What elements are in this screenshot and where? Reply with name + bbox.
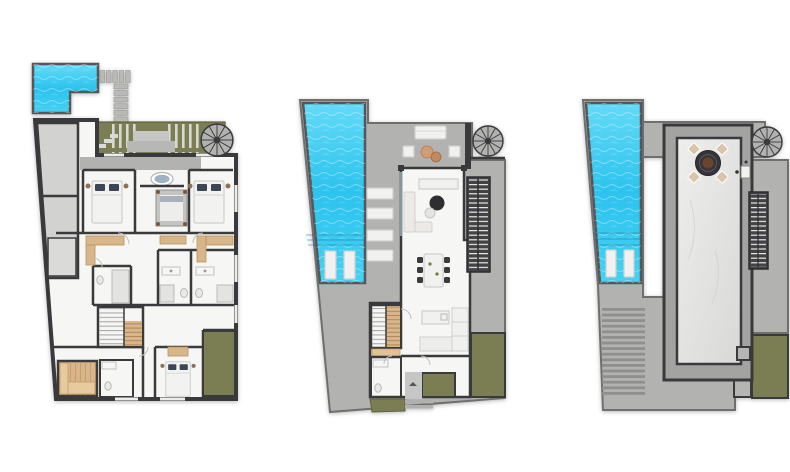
in-pool-lounger — [606, 250, 616, 277]
wardrobe — [372, 349, 400, 356]
stepping-stone — [100, 71, 105, 83]
toilet — [181, 289, 188, 298]
pool-water-texture — [33, 64, 98, 113]
sink — [102, 362, 116, 369]
bed-bedroom-3 — [188, 181, 231, 223]
outdoor-chair — [403, 146, 414, 157]
pouf-table — [431, 152, 441, 162]
terrace-strip — [80, 157, 201, 170]
dining-table — [424, 254, 443, 287]
wardrobe — [197, 236, 206, 262]
roof-vent — [735, 170, 739, 174]
garden-patch — [471, 333, 505, 397]
roof-access-door — [741, 166, 750, 178]
stepping-stone — [114, 110, 128, 115]
floorplan-main-level — [300, 100, 505, 412]
in-pool-lounger — [344, 251, 355, 279]
kitchen-island — [422, 311, 449, 324]
lap-pool — [586, 103, 641, 283]
stair-treads — [99, 308, 124, 346]
skylight — [737, 347, 750, 360]
shower — [112, 270, 129, 303]
toilet — [97, 276, 103, 284]
wardrobe — [206, 236, 233, 245]
appliance-column — [452, 308, 468, 351]
shower — [160, 285, 174, 302]
stair-wood-treads — [386, 306, 400, 347]
dining-chair — [444, 267, 450, 273]
stepping-stone — [114, 84, 128, 89]
exterior-dark-stair — [749, 192, 768, 269]
sun-lounger — [367, 250, 393, 261]
glass-corner-post — [398, 165, 404, 171]
sun-lounger — [367, 188, 393, 199]
sauna — [58, 361, 97, 396]
stepping-stone-path — [100, 71, 130, 122]
stepping-stone — [119, 71, 124, 83]
skylight — [734, 380, 751, 397]
floorplans-canvas — [0, 0, 790, 472]
stepping-stone — [114, 104, 128, 109]
dining-chair — [417, 257, 423, 263]
lap-pool — [303, 103, 365, 283]
sink — [373, 360, 388, 367]
louvered-pergola — [602, 307, 645, 397]
dining-chair — [444, 257, 450, 263]
floorplan-roof-level — [583, 100, 788, 410]
plunge-pool — [33, 64, 98, 113]
wardrobe — [168, 347, 188, 356]
stair-wood-treads — [124, 321, 142, 346]
garden-patch — [752, 335, 788, 398]
in-pool-lounger — [325, 251, 336, 279]
sun-lounger — [367, 208, 393, 219]
toilet — [196, 289, 203, 298]
fire-pit-center — [703, 158, 714, 169]
stepping-stone — [114, 117, 128, 122]
floorplan-lower-level — [33, 64, 236, 399]
spiral-staircase — [752, 127, 782, 157]
lounge-side-wall — [465, 123, 471, 169]
dining-chair — [444, 277, 450, 283]
stair-treads — [372, 306, 386, 347]
in-pool-lounger — [624, 250, 634, 277]
sun-lounger — [367, 230, 393, 241]
table-setting — [428, 262, 431, 265]
stepping-stone — [114, 97, 128, 102]
faucet — [204, 270, 207, 273]
coffee-table-light — [425, 208, 435, 218]
stepping-stone — [113, 71, 118, 83]
l-sofa-chaise — [415, 222, 432, 232]
dining-chair — [417, 277, 423, 283]
stepping-stone — [106, 71, 111, 83]
outdoor-sofa — [415, 126, 446, 139]
spiral-staircase — [473, 126, 503, 156]
stepping-stone — [126, 71, 131, 83]
bed-bedroom-4 — [160, 362, 195, 396]
toilet — [375, 384, 381, 392]
sauna-bench — [60, 363, 68, 394]
garden-deck-platform — [127, 141, 175, 152]
garden-step — [98, 144, 106, 148]
shower — [217, 285, 233, 302]
wardrobe — [86, 245, 95, 265]
floorplans-svg — [0, 0, 790, 472]
u-staircase — [98, 307, 143, 347]
stepping-stone — [114, 91, 128, 96]
tv-console — [419, 179, 458, 189]
wooden-u-staircase — [371, 305, 401, 348]
bed-bedroom-1 — [86, 181, 129, 223]
sauna-bench — [68, 382, 95, 394]
garden-patch — [203, 331, 235, 396]
table-setting — [435, 272, 438, 275]
glass-corner-post — [461, 165, 467, 171]
canopy-bed — [156, 190, 187, 226]
toilet — [105, 382, 111, 390]
garden-strip — [370, 399, 405, 412]
l-sofa — [404, 192, 415, 232]
faucet — [170, 270, 173, 273]
wardrobe — [86, 236, 124, 245]
garden-step — [110, 134, 118, 138]
roof-vent — [745, 161, 748, 164]
garden-patch — [422, 373, 455, 397]
outdoor-chair — [449, 146, 460, 157]
storage-room — [48, 238, 76, 276]
spiral-staircase — [201, 124, 233, 156]
exterior-dark-stair — [467, 177, 490, 272]
dining-area — [417, 254, 450, 287]
garden-step — [104, 139, 112, 143]
wardrobe — [160, 236, 186, 244]
dining-chair — [417, 267, 423, 273]
entry-step — [405, 405, 433, 409]
garden-deck-platform — [133, 131, 169, 141]
entry-step — [405, 400, 433, 404]
bathtub — [151, 173, 173, 186]
